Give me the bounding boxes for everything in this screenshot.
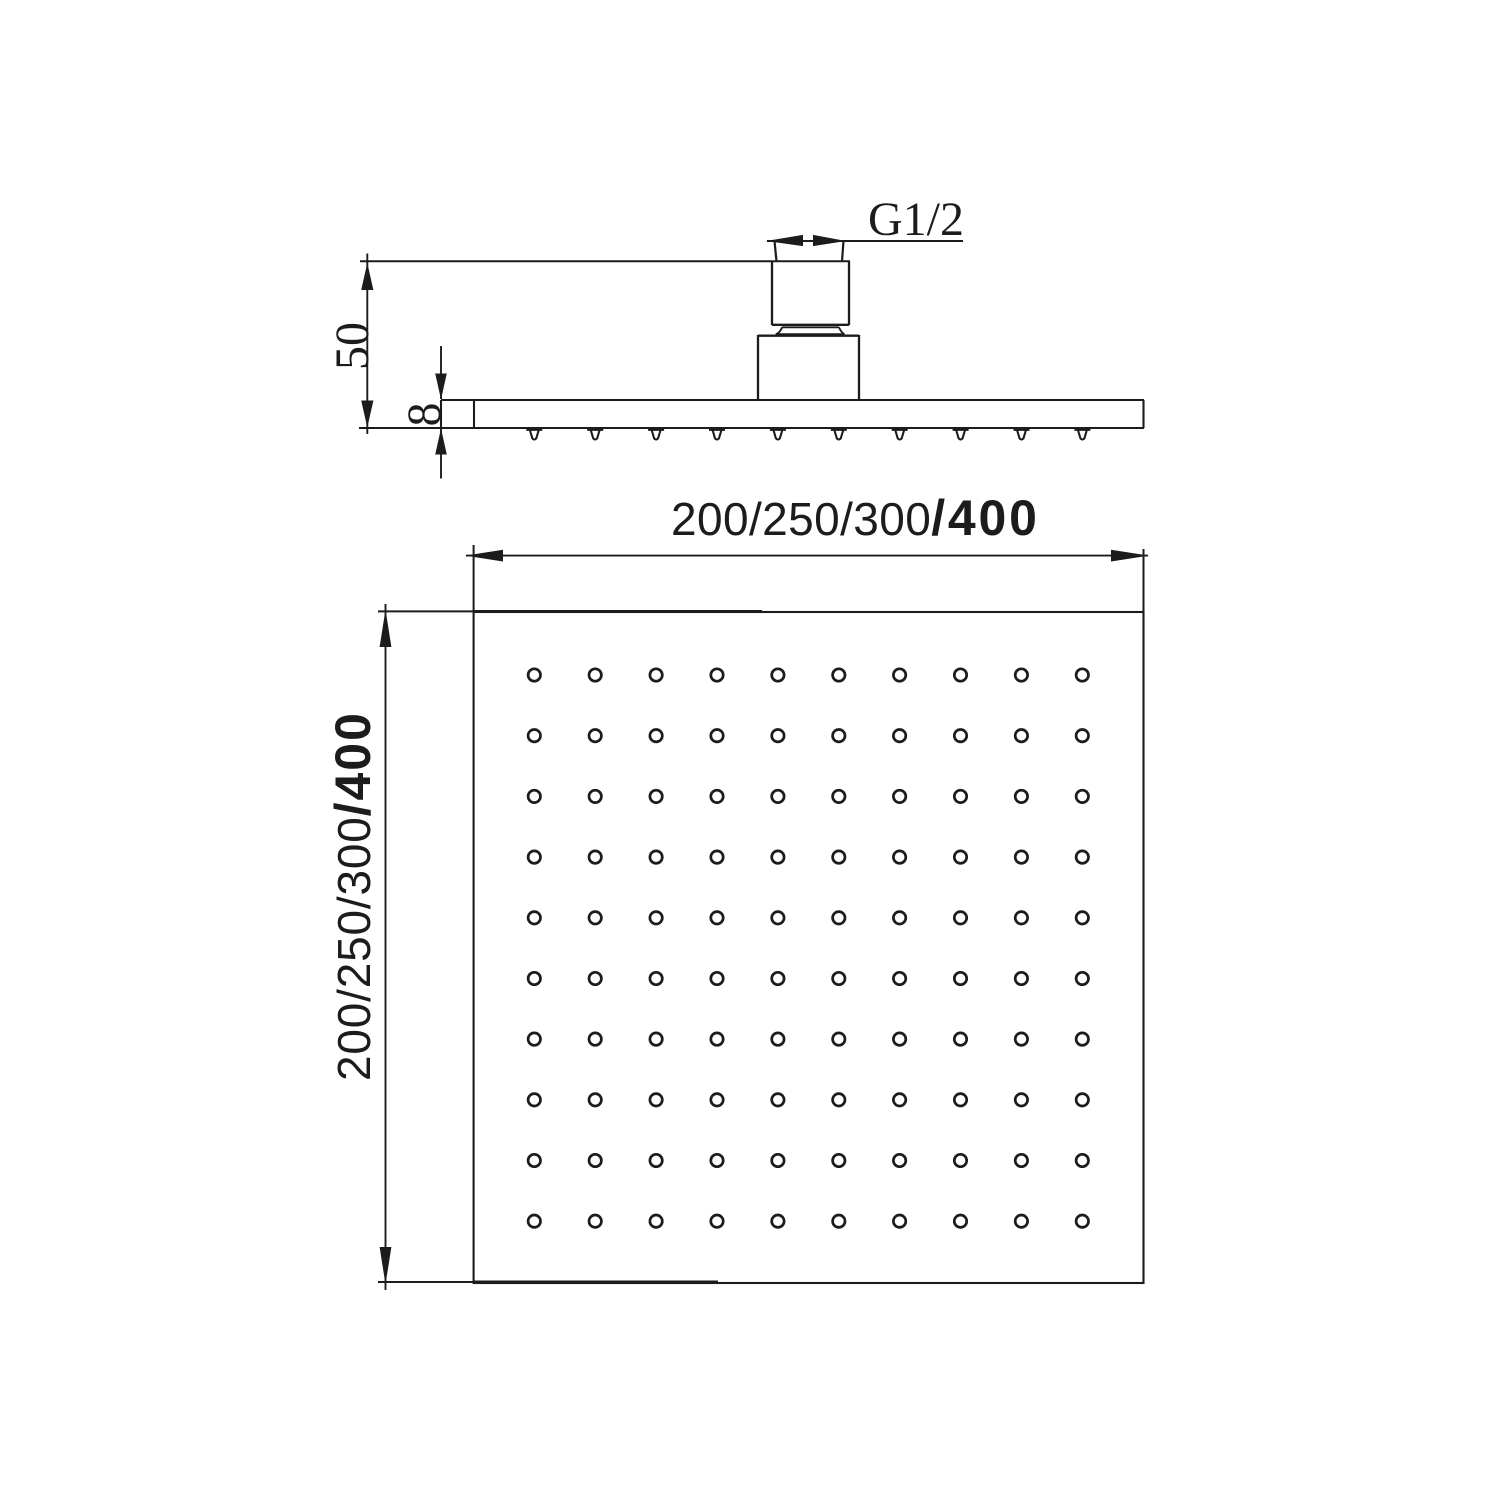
svg-text:200/250/300/400: 200/250/300/400 <box>671 490 1040 546</box>
svg-text:G1/2: G1/2 <box>868 193 964 246</box>
svg-text:8: 8 <box>398 403 451 427</box>
svg-text:50: 50 <box>326 322 379 370</box>
svg-text:200/250/300/400: 200/250/300/400 <box>325 711 381 1081</box>
